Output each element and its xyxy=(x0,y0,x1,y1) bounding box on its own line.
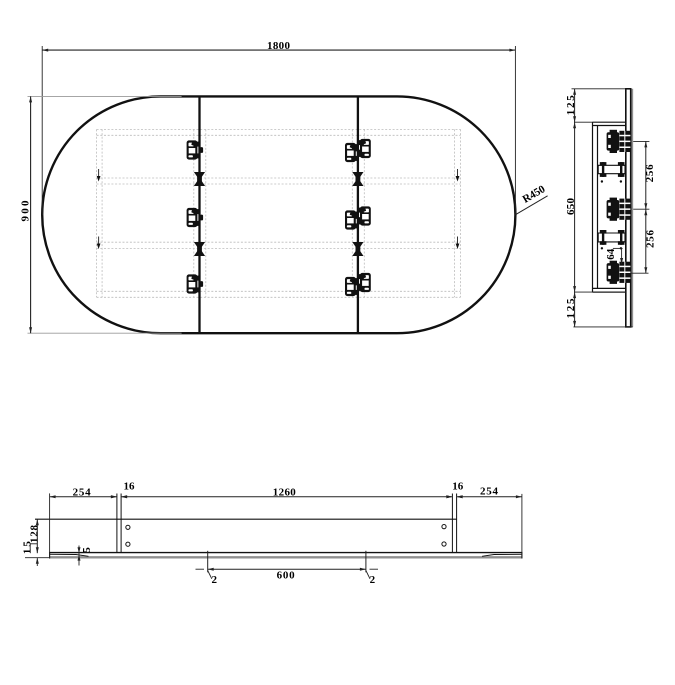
svg-text:5: 5 xyxy=(81,547,93,553)
svg-text:2: 2 xyxy=(211,574,217,586)
svg-text:64: 64 xyxy=(605,248,617,260)
svg-text:125: 125 xyxy=(565,298,577,319)
svg-text:254: 254 xyxy=(73,486,92,498)
svg-text:16: 16 xyxy=(124,480,136,492)
svg-text:15: 15 xyxy=(22,541,34,555)
svg-text:256: 256 xyxy=(645,230,657,249)
svg-text:650: 650 xyxy=(565,198,577,216)
svg-text:254: 254 xyxy=(480,485,499,497)
svg-text:2: 2 xyxy=(370,574,376,586)
svg-text:1260: 1260 xyxy=(273,487,297,499)
svg-text:256: 256 xyxy=(644,164,656,183)
svg-text:125: 125 xyxy=(565,95,577,116)
svg-text:1800: 1800 xyxy=(267,40,291,52)
svg-text:128: 128 xyxy=(29,525,41,544)
svg-text:600: 600 xyxy=(277,570,296,582)
svg-text:900: 900 xyxy=(20,200,32,222)
svg-text:16: 16 xyxy=(452,480,464,492)
